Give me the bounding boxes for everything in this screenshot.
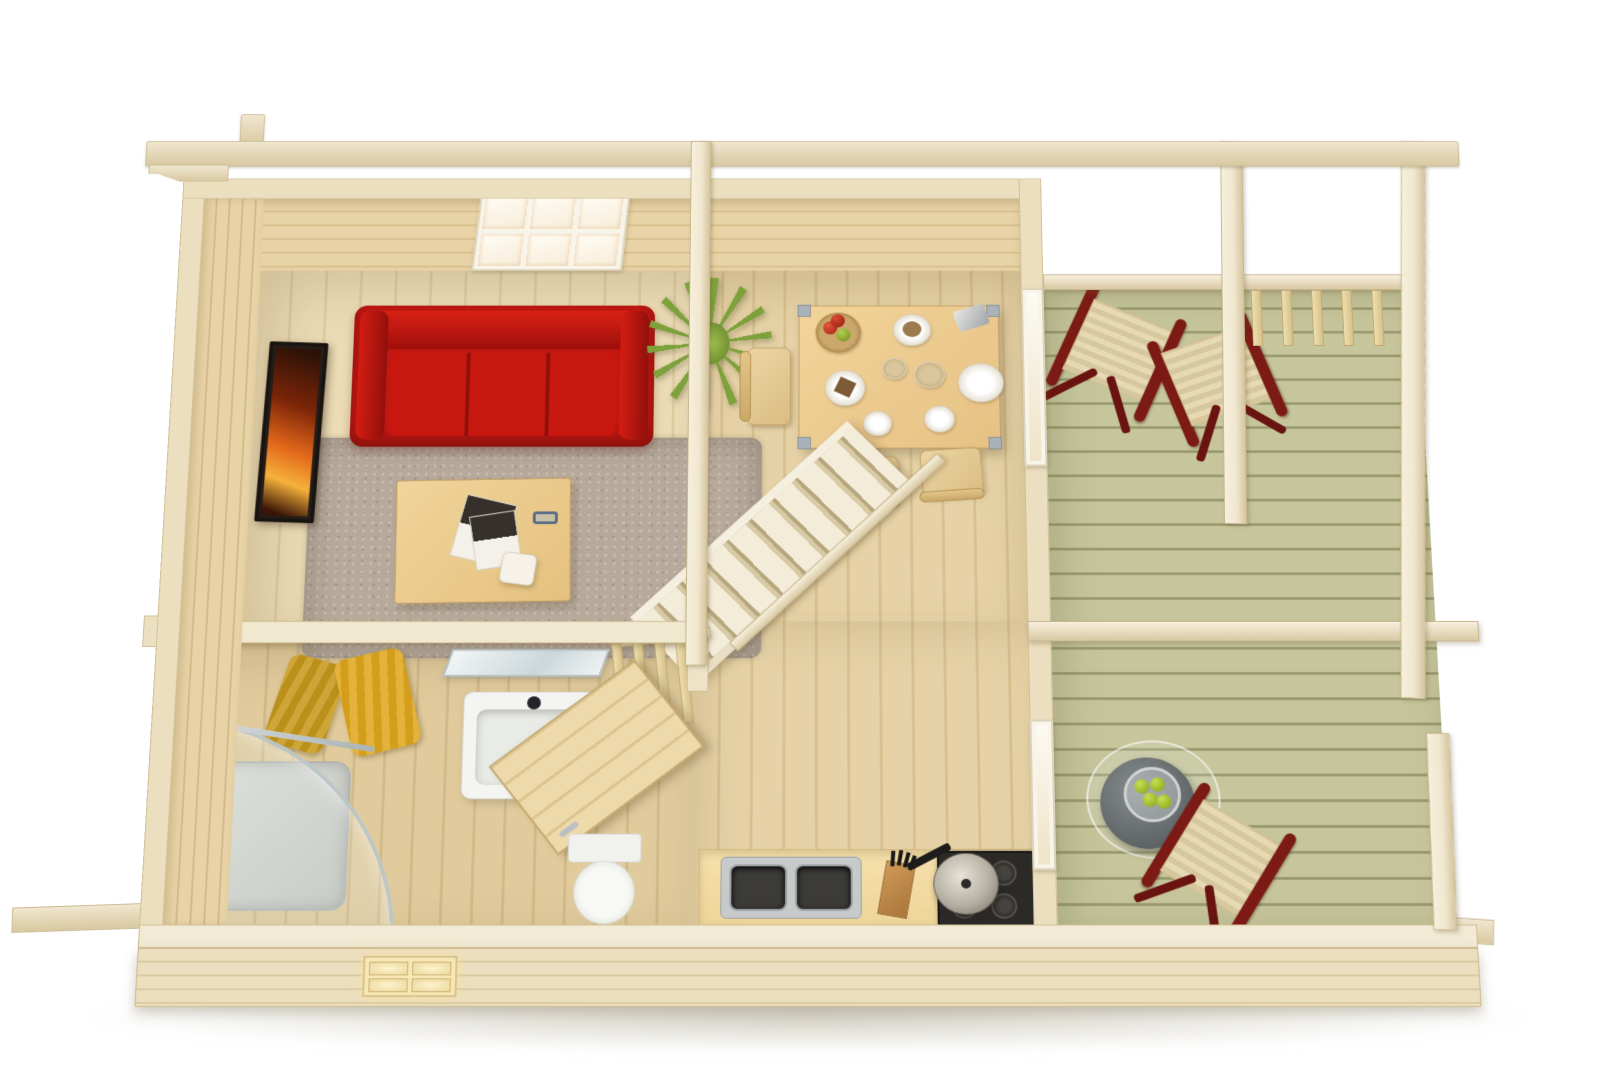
apple [1134,779,1149,793]
bowl-small [882,358,907,379]
plate-food-topping [902,321,921,337]
table-leg [986,305,999,317]
apple [1150,777,1165,791]
glow-pane [412,962,452,976]
apple-red-2 [831,314,845,327]
dining-chair-left [747,348,791,426]
glow-pane [368,978,408,992]
pergola-post-right [1400,141,1425,700]
glow-pane [411,978,451,992]
terrace-window-lower [1029,720,1056,870]
apple-bowl [1123,767,1182,822]
apple-green [836,328,850,341]
table-leg [988,437,1002,450]
apple [1142,793,1157,807]
sink-basin-right [795,864,853,910]
dining-chair-left-back [739,351,751,422]
red-sofa [349,306,655,447]
sofa-back-cushion [359,311,649,349]
purlin-corbel [148,165,229,182]
window-glass [1035,725,1050,864]
sofa-seat-cushions [388,353,617,436]
window-pane [478,234,524,266]
sofa-armrest-right [619,311,650,440]
cabin [133,178,1484,1037]
window-pane [573,234,619,266]
floor-plan-render [0,0,1600,1067]
living-room-window [471,190,631,271]
window-pane [482,195,528,228]
toilet-tank [568,834,642,863]
fruit-basket [816,313,862,353]
apple [1156,794,1171,808]
steel-pot [933,853,1000,915]
sink-basin-left [729,864,787,910]
top-purlin-beam [145,141,1460,166]
bathroom-glow-window [362,956,458,997]
top-wall [182,178,1041,198]
plate-tan [914,362,945,388]
window-pane [578,195,624,228]
faucet [527,696,541,709]
window-pane [530,195,576,228]
cup-saucer-2 [924,406,955,433]
wall-art-canvas [261,348,321,517]
pot-lid-knob [961,879,971,889]
sofa-armrest-left [355,311,389,440]
table-leg [798,305,811,317]
cup-saucer-1 [863,411,892,436]
table-leg [797,437,810,450]
partition-wall-living-bath [179,621,705,643]
glow-pane [369,962,409,976]
tissue-cube [498,551,538,586]
plate-large [958,363,1004,402]
terrace-window-upper [1021,288,1048,466]
front-wall-face [134,948,1481,1007]
reading-glasses [533,511,558,524]
window-glass [1027,293,1042,461]
kitchen-sink-unit [720,857,862,919]
window-pane [526,234,572,266]
mirror-shelf [442,649,610,677]
bottom-wall-top-face [138,925,1478,948]
knife [890,851,895,867]
pergola-post-mid [1220,141,1247,524]
